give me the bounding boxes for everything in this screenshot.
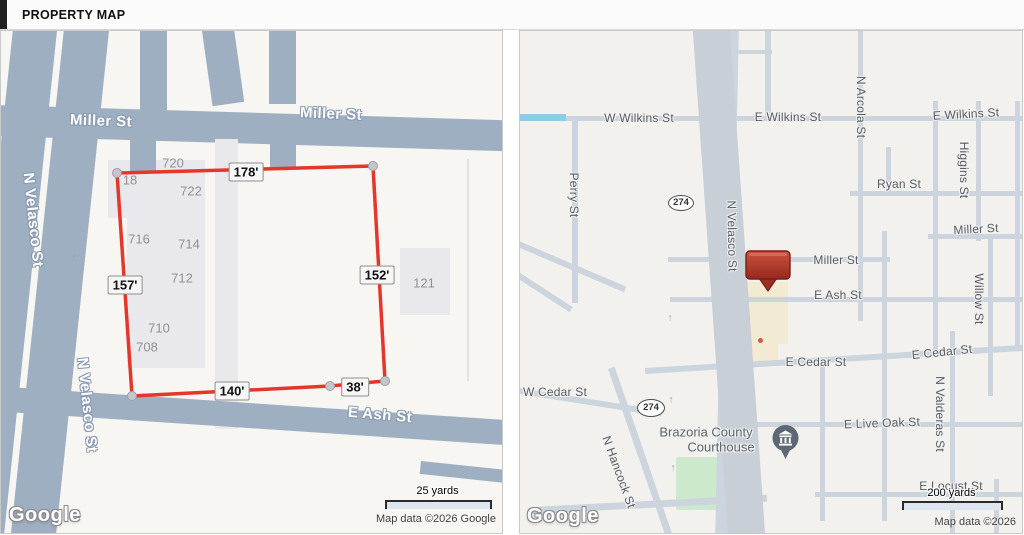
street-label-miller-st: Miller St <box>300 104 363 124</box>
water-stream <box>520 114 566 121</box>
map-attribution: Map data ©2026 <box>935 516 1017 528</box>
dimension-label-left: 157' <box>108 276 143 295</box>
road-vertical <box>820 361 825 521</box>
page-title: PROPERTY MAP <box>22 8 125 22</box>
street-label-n-valderas-st: N Valderas St <box>933 376 947 452</box>
road-diagonal <box>519 269 573 312</box>
scale-label: 25 yards <box>385 485 490 497</box>
street-label-miller-st: Miller St <box>953 221 999 237</box>
vertex-dot <box>113 169 122 178</box>
dimension-label-right: 152' <box>360 266 395 285</box>
street-label-miller-st: Miller St <box>813 253 858 267</box>
vertex-dot <box>326 382 335 391</box>
route-shield-274: 274 <box>668 195 694 211</box>
street-label-perry-st: Perry St <box>567 173 581 218</box>
street-label-n-arcola-st: N Arcola St <box>854 76 868 138</box>
street-label-ryan-st: Ryan St <box>877 177 921 191</box>
road-vertical <box>882 231 887 521</box>
courthouse-pin-icon[interactable] <box>771 424 800 461</box>
street-label-miller-st: Miller St <box>70 111 133 130</box>
dimension-label-top: 178' <box>229 163 264 182</box>
street-label-w-wilkins-st: W Wilkins St <box>604 111 674 125</box>
dimension-label-bottom: 140' <box>215 382 250 401</box>
one-way-arrow-icon: ↑ <box>671 463 676 474</box>
map-attribution: Map data ©2026 Google <box>376 513 496 525</box>
property-map-page: PROPERTY MAP ↑ <box>0 0 1024 535</box>
parcel-number: 708 <box>136 340 158 355</box>
parcel-map[interactable]: ↑ Miller St Miller St N Velasco St N Vel… <box>0 30 503 534</box>
google-logo[interactable]: Google <box>527 505 599 528</box>
parcel-number: 121 <box>413 276 435 291</box>
road-willow-st <box>988 234 993 396</box>
route-shield-274: 274 <box>637 399 665 417</box>
vertex-dot <box>369 162 378 171</box>
google-logo[interactable]: Google <box>9 504 81 527</box>
road-higgins-st <box>976 101 981 241</box>
street-label-willow-st: Willow St <box>972 273 986 324</box>
road-stub <box>765 31 771 118</box>
scale-bar <box>385 500 492 509</box>
parcel-number: 710 <box>148 321 170 336</box>
scale-label: 200 yards <box>902 487 1001 499</box>
parcel-number: 712 <box>171 271 193 286</box>
header-accent-bar <box>0 0 7 29</box>
parcel-number: 714 <box>178 237 200 252</box>
street-label-n-hancock-st: N Hancock St <box>599 434 638 510</box>
street-label-e-live-oak-st: E Live Oak St <box>844 415 920 432</box>
poi-label-courthouse: Brazoria County <box>659 425 752 440</box>
vertex-dot <box>381 377 390 386</box>
one-way-arrow-icon: ↑ <box>668 313 673 324</box>
road-vertical <box>1015 101 1020 346</box>
one-way-arrow-icon: ↑ <box>669 395 674 406</box>
parcel-number: 722 <box>180 184 202 199</box>
scale-bar <box>902 501 1003 510</box>
street-label-e-cedar-st: E Cedar St <box>786 355 847 369</box>
property-marker[interactable] <box>742 248 794 296</box>
street-label-e-cedar-st: E Cedar St <box>911 342 973 362</box>
road-vertical <box>933 101 938 351</box>
page-header: PROPERTY MAP <box>0 0 1024 30</box>
street-label-e-wilkins-st: E Wilkins St <box>755 110 821 124</box>
poi-dot-red <box>758 338 763 343</box>
street-label-w-cedar-st: W Cedar St <box>523 385 587 399</box>
poi-label-courthouse: Courthouse <box>687 440 754 455</box>
vertex-dot <box>128 392 137 401</box>
parcel-number: 716 <box>128 232 150 247</box>
parcel-number: 720 <box>162 156 184 171</box>
dimension-label-bottom-right: 38' <box>341 378 369 397</box>
area-map[interactable]: ↑ ↑ ↑ W Wilkins St E Wilkins St E Wilkin… <box>519 30 1023 534</box>
parcel-number: 18 <box>123 173 137 188</box>
road-n-arcola-st <box>858 30 863 321</box>
street-label-higgins-st: Higgins St <box>957 142 971 199</box>
street-label-e-ash-st: E Ash St <box>814 288 862 302</box>
street-label-n-velasco-st: N Velasco St <box>724 200 739 271</box>
